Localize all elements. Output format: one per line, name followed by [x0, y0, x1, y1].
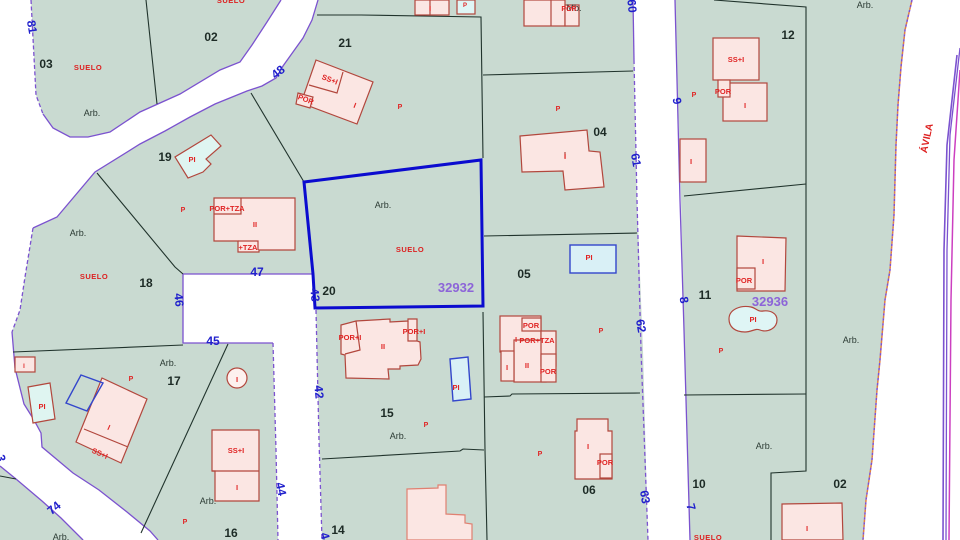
svg-text:Arb.: Arb.	[843, 335, 860, 345]
svg-text:PI: PI	[452, 383, 459, 392]
svg-text:I: I	[806, 524, 808, 533]
svg-text:06: 06	[582, 483, 596, 497]
svg-text:Arb.: Arb.	[200, 496, 217, 506]
svg-text:POR: POR	[523, 321, 540, 330]
svg-text:02: 02	[833, 477, 847, 491]
svg-text:P: P	[556, 106, 561, 113]
svg-text:I: I	[744, 101, 746, 110]
svg-text:I: I	[762, 257, 764, 266]
svg-text:P: P	[129, 376, 134, 383]
svg-text:03: 03	[39, 57, 53, 71]
svg-text:14: 14	[331, 523, 345, 537]
svg-text:P: P	[538, 451, 543, 458]
svg-text:21: 21	[338, 36, 352, 50]
svg-text:Arb.: Arb.	[390, 431, 407, 441]
svg-text:18: 18	[139, 276, 153, 290]
svg-text:Arb.: Arb.	[375, 200, 392, 210]
svg-text:POR: POR	[540, 367, 557, 376]
svg-text:45: 45	[206, 334, 220, 348]
svg-text:Arb.: Arb.	[70, 228, 87, 238]
svg-text:60: 60	[624, 0, 639, 14]
svg-text:15: 15	[380, 406, 394, 420]
svg-text:11: 11	[699, 288, 712, 302]
svg-text:I: I	[564, 152, 566, 161]
svg-text:Arb.: Arb.	[857, 0, 874, 10]
svg-text:43: 43	[307, 288, 322, 303]
svg-text:16: 16	[224, 526, 238, 540]
svg-text:SS+I: SS+I	[228, 446, 244, 455]
svg-text:P: P	[398, 104, 403, 111]
svg-text:46: 46	[171, 293, 186, 308]
svg-text:POR+I: POR+I	[339, 333, 362, 342]
svg-text:POR: POR	[736, 276, 753, 285]
svg-text:I: I	[515, 335, 517, 344]
svg-text:PI: PI	[38, 402, 45, 411]
svg-text:12: 12	[781, 28, 795, 42]
svg-text:POR+TZA: POR+TZA	[519, 336, 555, 345]
svg-text:+TZA: +TZA	[239, 243, 259, 252]
svg-text:Arb.: Arb.	[160, 358, 177, 368]
svg-text:I: I	[587, 442, 589, 451]
svg-text:POR+I: POR+I	[403, 327, 426, 336]
svg-text:II: II	[253, 220, 257, 229]
svg-text:P: P	[181, 207, 186, 214]
svg-text:P: P	[599, 328, 604, 335]
svg-text:17: 17	[167, 374, 181, 388]
svg-text:19: 19	[158, 150, 172, 164]
svg-text:POR+TZA: POR+TZA	[209, 204, 245, 213]
svg-text:P: P	[183, 519, 188, 526]
svg-text:I: I	[429, 4, 431, 13]
svg-text:POR: POR	[597, 458, 614, 467]
svg-text:61: 61	[628, 152, 644, 168]
svg-text:PI: PI	[188, 155, 195, 164]
svg-text:I: I	[506, 363, 508, 372]
svg-text:20: 20	[322, 284, 336, 298]
svg-text:I: I	[690, 157, 692, 166]
svg-text:P: P	[424, 422, 429, 429]
svg-text:Arb.: Arb.	[53, 532, 70, 540]
svg-text:SUELO: SUELO	[74, 63, 102, 72]
svg-text:62: 62	[633, 318, 649, 334]
svg-text:Arb.: Arb.	[756, 441, 773, 451]
svg-text:42: 42	[311, 385, 326, 400]
svg-text:63: 63	[637, 489, 653, 505]
svg-text:P: P	[463, 3, 467, 9]
svg-text:05: 05	[517, 267, 531, 281]
svg-text:10: 10	[692, 477, 706, 491]
svg-text:PI: PI	[585, 253, 592, 262]
svg-text:32932: 32932	[438, 280, 474, 295]
svg-text:SUELO: SUELO	[217, 0, 245, 5]
svg-text:02: 02	[204, 30, 218, 44]
svg-text:P: P	[719, 348, 724, 355]
svg-text:32936: 32936	[752, 294, 788, 309]
svg-text:04: 04	[593, 125, 607, 139]
svg-text:SUELO: SUELO	[396, 245, 424, 254]
svg-text:I: I	[236, 483, 238, 492]
svg-text:47: 47	[250, 265, 264, 279]
svg-text:PI: PI	[749, 315, 756, 324]
svg-text:I: I	[236, 375, 238, 384]
svg-text:81: 81	[24, 19, 40, 35]
svg-text:Arb.: Arb.	[84, 108, 101, 118]
svg-text:SUELO: SUELO	[80, 272, 108, 281]
svg-text:II: II	[525, 361, 529, 370]
svg-text:POR: POR	[715, 87, 732, 96]
svg-text:II: II	[381, 342, 385, 351]
svg-text:SS+I: SS+I	[728, 55, 744, 64]
svg-text:P: P	[692, 92, 697, 99]
svg-text:POR: POR	[561, 6, 576, 13]
svg-text:SUELO: SUELO	[694, 533, 722, 540]
